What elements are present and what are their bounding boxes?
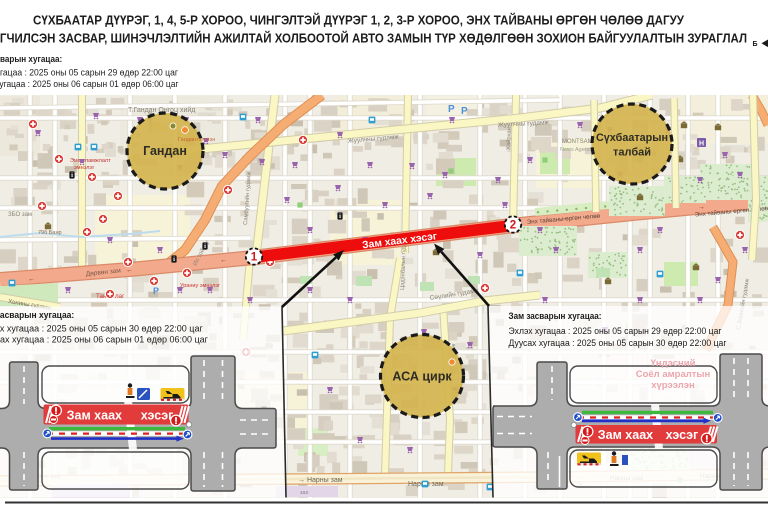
svg-text:эмнэлэг: эмнэлэг [74, 165, 94, 171]
svg-text:←: ← [220, 257, 227, 264]
svg-text:→: → [560, 215, 567, 222]
svg-text:хүрээлэн: хүрээлэн [651, 380, 695, 391]
svg-text:79б Банр: 79б Банр [38, 230, 62, 236]
svg-text:талбай: талбай [613, 147, 651, 159]
svg-text:←: ← [28, 276, 35, 283]
svg-text:Эхлэх хугацаа : 2025 оны 05 са: Эхлэх хугацаа : 2025 оны 05 сарын 30 өдө… [0, 324, 203, 334]
svg-text:Үндэсний: Үндэсний [651, 358, 696, 369]
svg-text:News Agency: News Agency [560, 147, 594, 153]
svg-text:Соёл амралтын: Соёл амралтын [636, 369, 711, 380]
svg-text:i: i [173, 256, 175, 263]
svg-text:Зам хаах хэсэг: Зам хаах хэсэг [67, 409, 174, 423]
svg-text:Дуусах хугацаа : 2025 оны 06 с: Дуусах хугацаа : 2025 оны 06 сарын 01 өд… [0, 79, 179, 89]
svg-text:Хайрхан: Хайрхан [505, 127, 513, 150]
svg-text:i: i [339, 213, 341, 220]
svg-text:→: → [698, 204, 705, 211]
svg-text:Зам засварын хугацаа:: Зам засварын хугацаа: [0, 310, 74, 320]
svg-text:i: i [204, 243, 206, 250]
svg-text:Зам засварын хугацаа:: Зам засварын хугацаа: [509, 311, 602, 321]
svg-text:P: P [448, 104, 455, 115]
svg-text:Эмо уламжлалт: Эмо уламжлалт [70, 158, 111, 164]
svg-text:Гандантэгчлэн: Гандантэгчлэн [178, 137, 215, 143]
svg-text:P: P [461, 106, 468, 117]
svg-text:1: 1 [251, 252, 258, 264]
svg-text:АСА цирк: АСА цирк [392, 370, 452, 384]
svg-text:Гандан: Гандан [143, 144, 187, 158]
svg-text:зах: зах [300, 490, 309, 496]
svg-text:Сүхбаатарын: Сүхбаатарын [596, 132, 668, 144]
svg-text:→ Нарны зам: → Нарны зам [298, 477, 343, 484]
svg-text:Зам хаах хэсэг: Зам хаах хэсэг [598, 428, 698, 442]
svg-text:Эхлэх хугацаа : 2025 оны 05 са: Эхлэх хугацаа : 2025 оны 05 сарын 29 өдө… [0, 68, 179, 78]
svg-text:Дуусах хугацаа : 2025 оны 06 с: Дуусах хугацаа : 2025 оны 06 сарын 01 өд… [0, 335, 209, 345]
svg-text:Дуусах хугацаа : 2025 оны 05 с: Дуусах хугацаа : 2025 оны 05 сарын 30 өд… [509, 338, 728, 348]
svg-text:Б: Б [753, 41, 758, 48]
svg-text:ӨГЧИЛСЭН ЗАСВАР, ШИНЭЧЛЭЛТИЙН: ӨГЧИЛСЭН ЗАСВАР, ШИНЭЧЛЭЛТИЙН АЖИЛТАЙ ХО… [0, 31, 747, 46]
svg-text:Эхлэх хугацаа : 2025 оны 05 са: Эхлэх хугацаа : 2025 оны 05 сарын 29 өдө… [509, 326, 723, 336]
svg-text:H: H [699, 141, 704, 148]
svg-text:P: P [153, 286, 159, 296]
svg-text:i: i [71, 172, 73, 179]
svg-text:Ураниу эмнэлэг: Ураниу эмнэлэг [180, 283, 220, 289]
svg-text:Зам засварын хугацаа:: Зам засварын хугацаа: [0, 54, 62, 64]
svg-text:ЗБО зам: ЗБО зам [8, 212, 32, 218]
svg-text:СҮХБААТАР ДҮҮРЭГ, 1, 4, 5-Р ХО: СҮХБААТАР ДҮҮРЭГ, 1, 4, 5-Р ХОРОО, ЧИНГЭ… [33, 13, 684, 28]
svg-text:2: 2 [510, 220, 516, 232]
svg-text:←: ← [126, 267, 133, 274]
